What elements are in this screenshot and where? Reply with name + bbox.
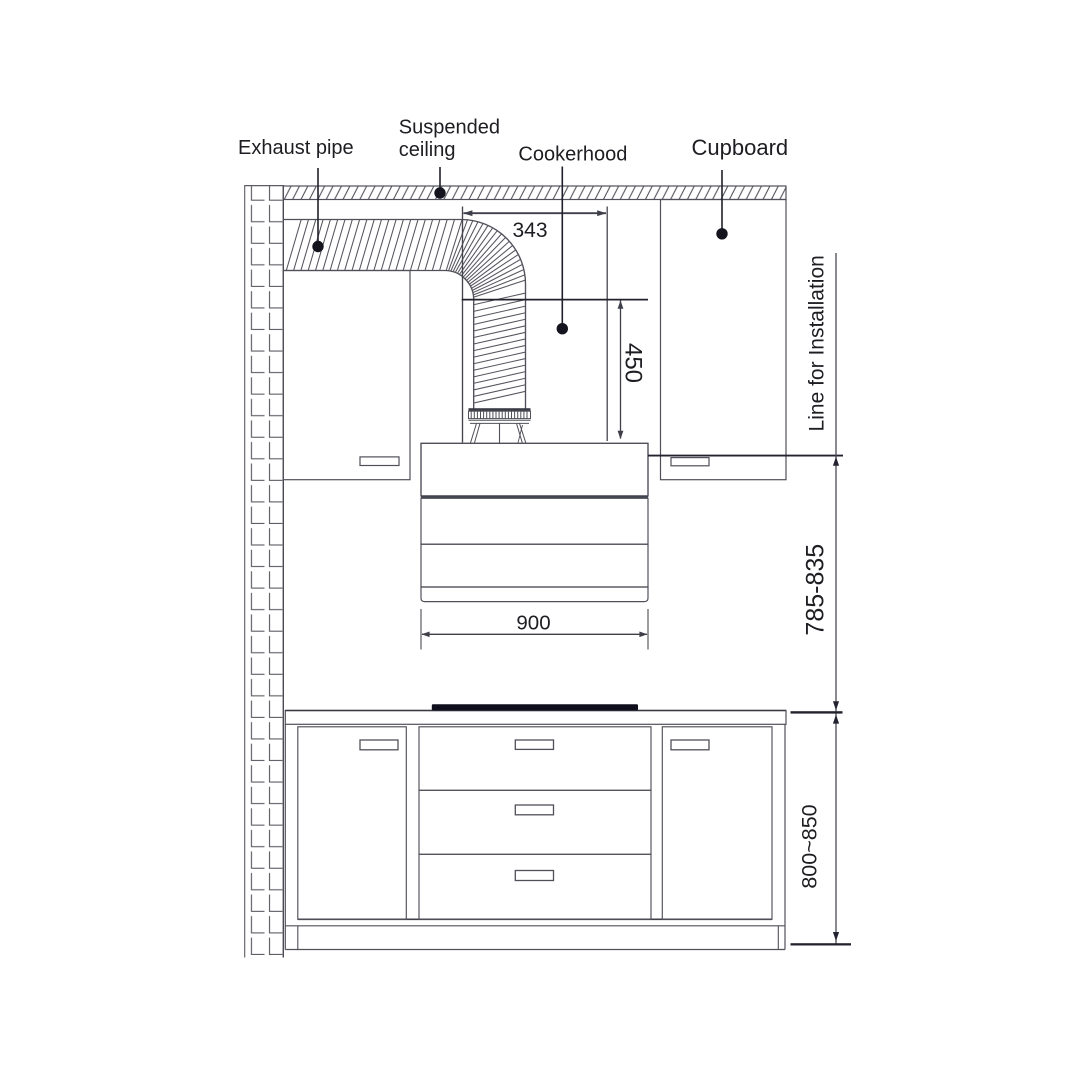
svg-text:450: 450 <box>620 343 647 383</box>
svg-text:785-835: 785-835 <box>802 544 830 636</box>
svg-text:343: 343 <box>512 219 547 242</box>
svg-text:ceiling: ceiling <box>399 139 456 161</box>
svg-text:Line for Installation: Line for Installation <box>806 255 829 431</box>
svg-text:800~850: 800~850 <box>798 804 822 888</box>
svg-text:Cookerhood: Cookerhood <box>518 143 627 165</box>
svg-text:Cupboard: Cupboard <box>692 135 789 160</box>
svg-text:Suspended: Suspended <box>399 116 500 138</box>
svg-text:Exhaust pipe: Exhaust pipe <box>238 137 354 159</box>
svg-text:900: 900 <box>516 611 550 634</box>
